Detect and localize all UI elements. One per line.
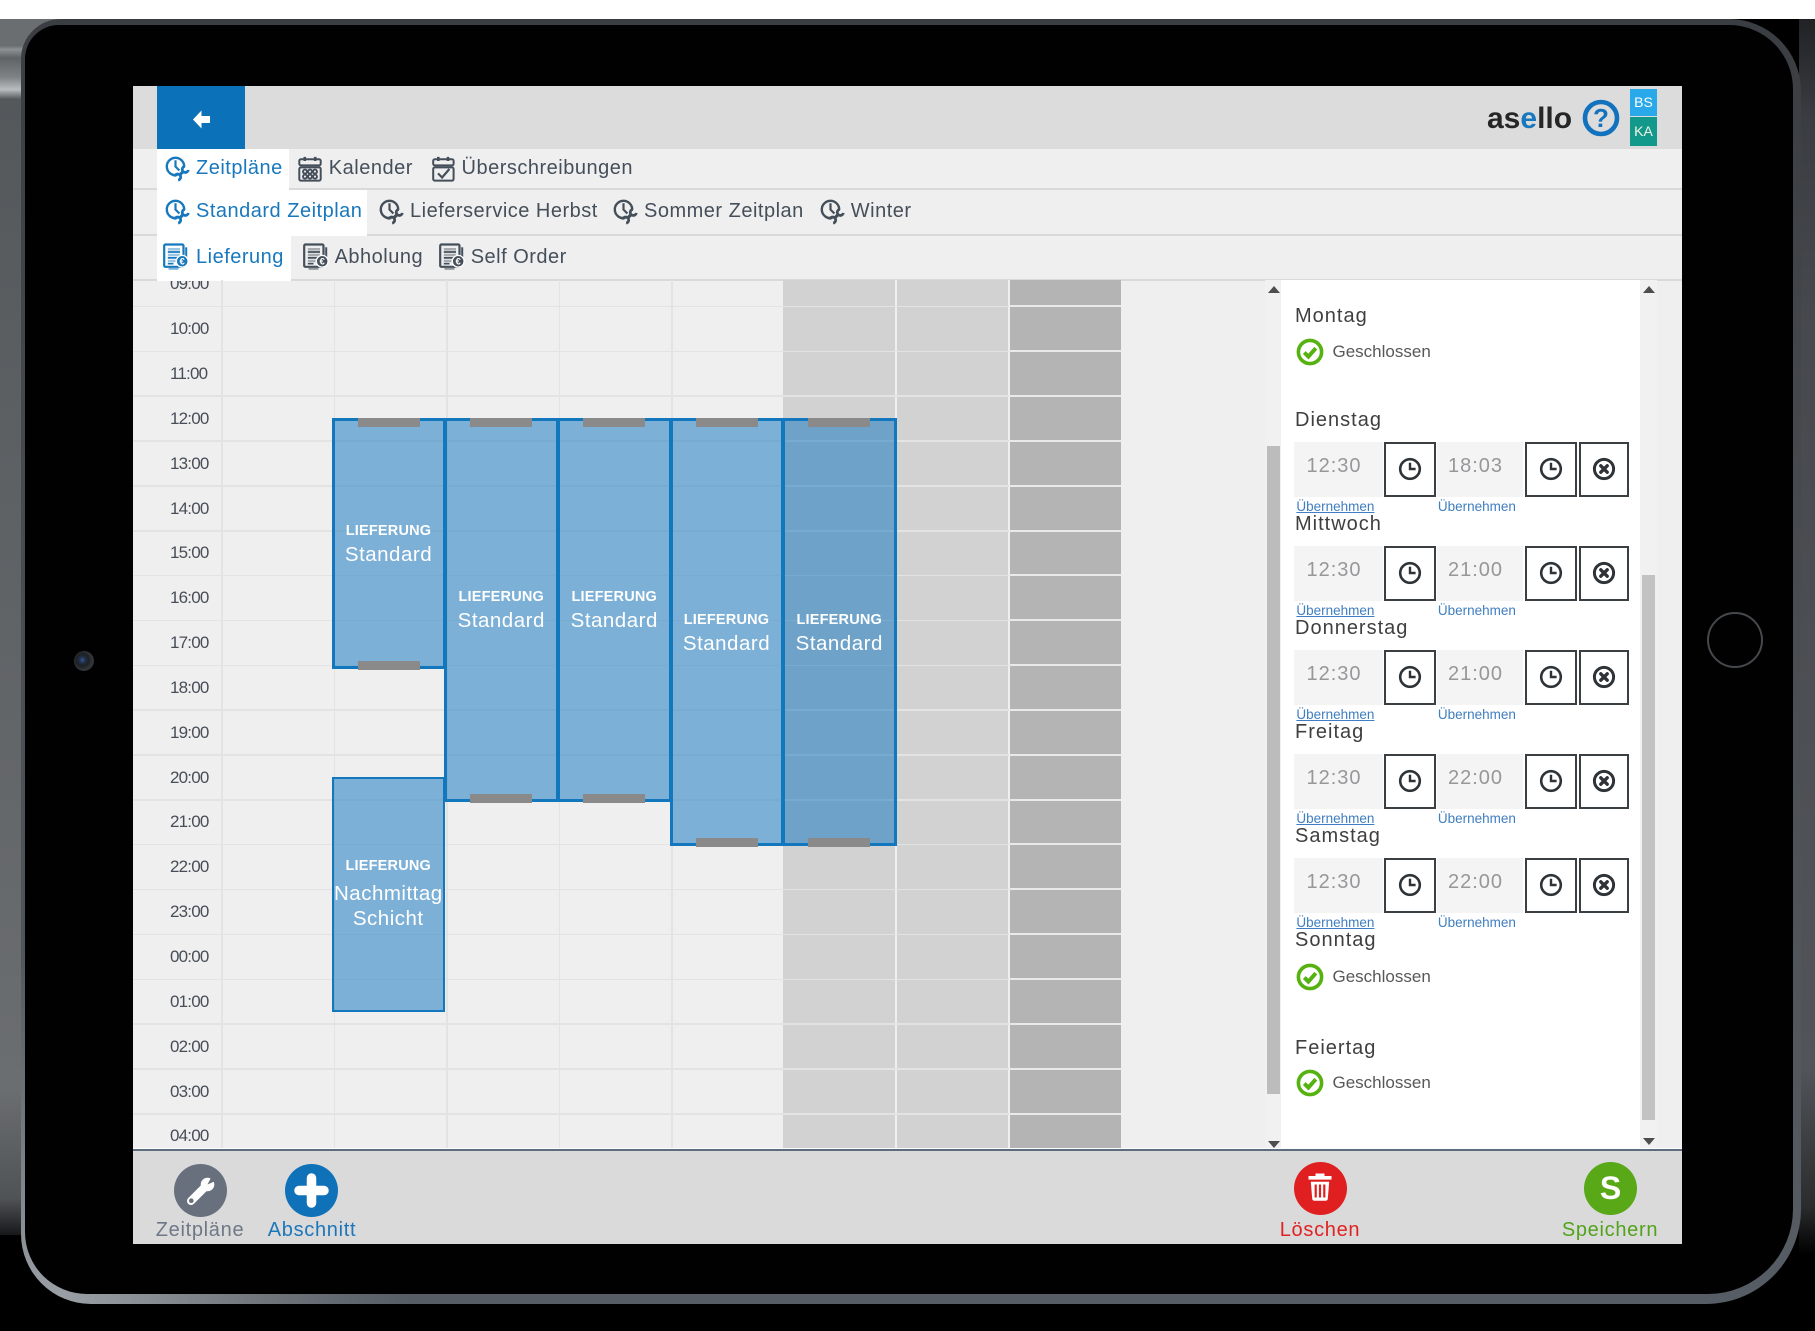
svg-text:?: ? xyxy=(1593,103,1609,133)
svg-text:€: € xyxy=(319,257,325,268)
svg-text:€: € xyxy=(455,257,461,268)
svg-text:€: € xyxy=(180,257,186,268)
